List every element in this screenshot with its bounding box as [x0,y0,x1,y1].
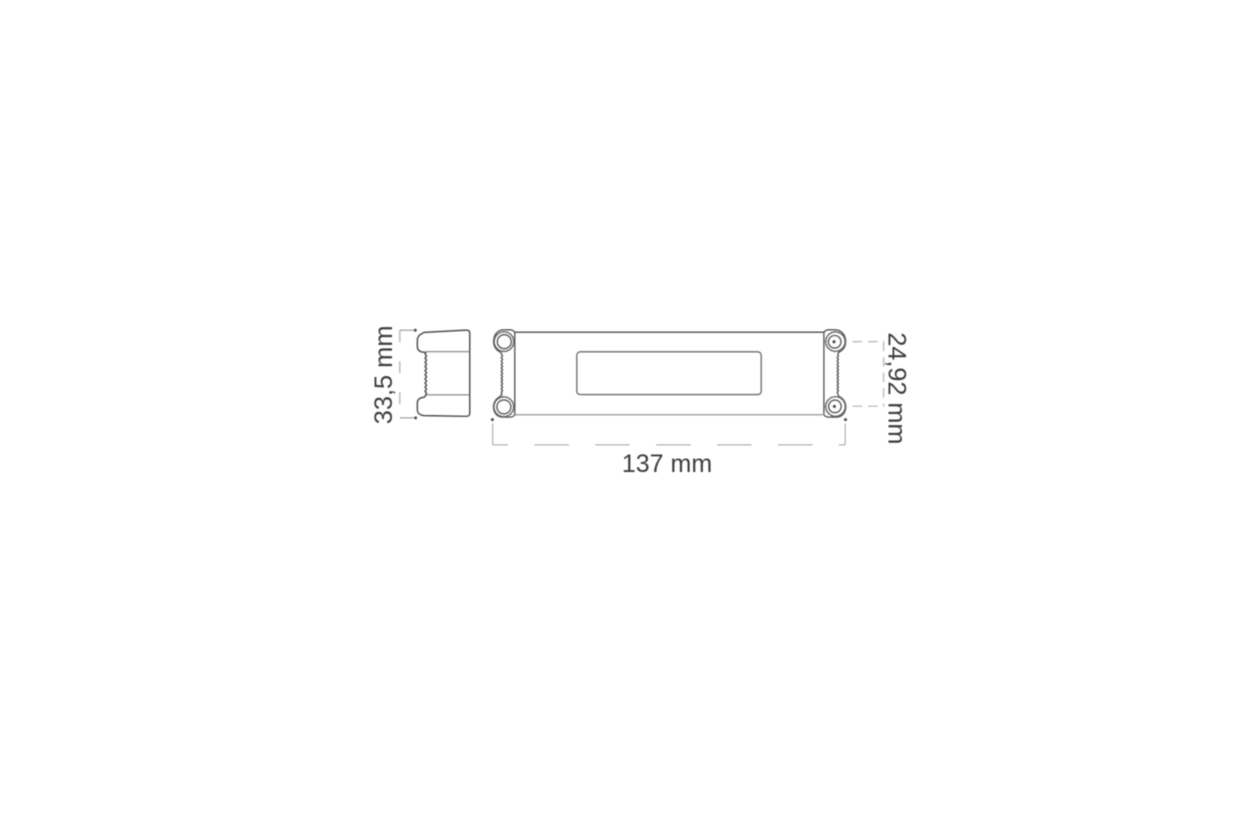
svg-text:137 mm: 137 mm [622,450,712,478]
svg-text:24,92 mm: 24,92 mm [883,332,911,444]
svg-text:33,5 mm: 33,5 mm [370,326,398,425]
